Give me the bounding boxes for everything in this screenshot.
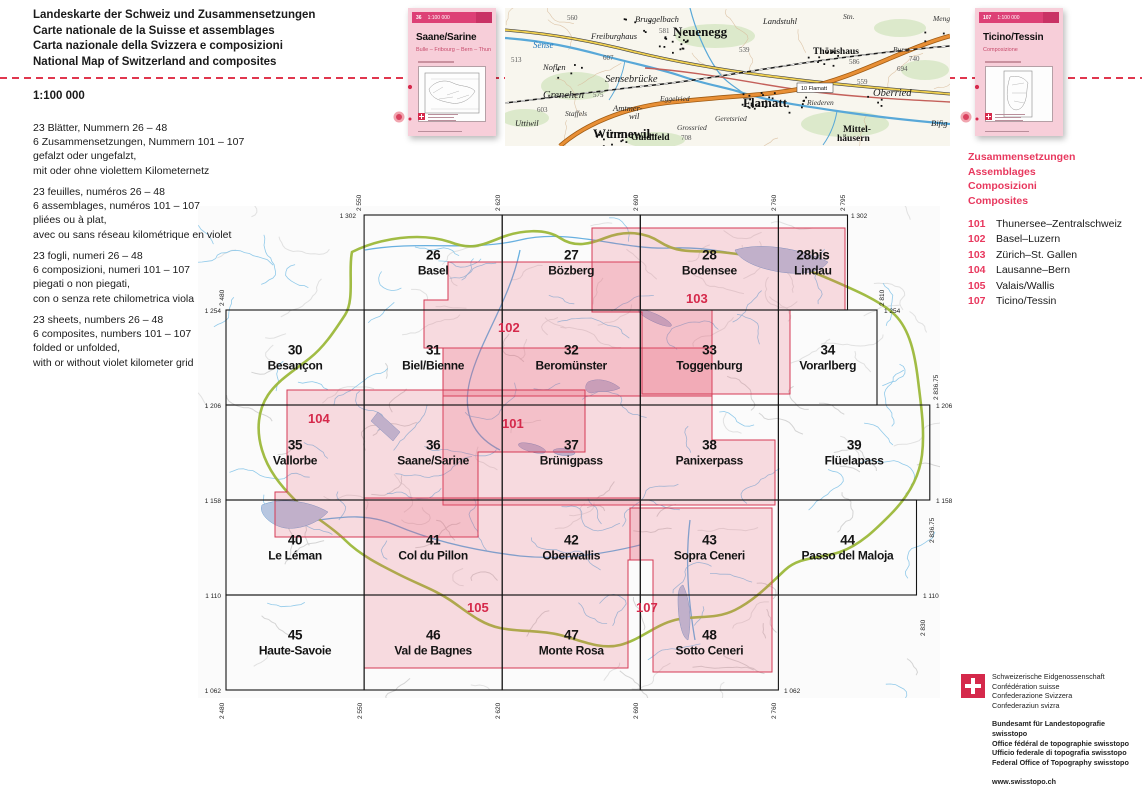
composite-item: 102Basel–Luzern xyxy=(968,232,1122,247)
cover-bottom-line xyxy=(418,131,462,132)
sheet-name-48: Sotto Ceneri xyxy=(675,644,743,658)
composite-name: Thunersee–Zentralschweiz xyxy=(996,217,1122,232)
sample-place-label: Eggelried xyxy=(659,94,690,103)
desc-line: pliées ou à plat, xyxy=(33,213,231,227)
composite-item: 103Zürich–St. Gallen xyxy=(968,248,1122,263)
cover-header-band: 107 1:100 000 xyxy=(979,12,1059,23)
sheet-number-28: 28 xyxy=(702,248,717,263)
sample-place-label: 740 xyxy=(909,55,920,63)
sheet-name-39: Flüelapass xyxy=(825,454,885,468)
confed-line: Confederazione Svizzera xyxy=(992,691,1142,701)
desc-line: gefalzt oder ungefalzt, xyxy=(33,149,244,163)
sheet-name-41: Col du Pillon xyxy=(398,549,467,563)
cover-caption-bar xyxy=(985,61,1021,63)
cover-band-endcap xyxy=(1043,12,1059,23)
sample-place-label: Flamatt xyxy=(743,95,788,110)
cover-footer xyxy=(418,113,488,127)
sample-place-label: Bifig xyxy=(931,118,948,128)
sheet-name-36: Saane/Sarine xyxy=(397,454,469,468)
sheet-name-30: Besançon xyxy=(268,359,323,373)
sample-place-label: Staffels xyxy=(565,109,587,118)
map-sample-image: BruggelbachLandstuhlStn.ThörishausNeuene… xyxy=(505,8,950,146)
description-en: 23 sheets, numbers 26 – 48 6 composites,… xyxy=(33,313,193,370)
sample-place-label: 560 xyxy=(567,14,578,22)
description-fr: 23 feuilles, numéros 26 – 48 6 assemblag… xyxy=(33,185,231,242)
composite-number: 104 xyxy=(968,263,996,278)
sample-place-label: 539 xyxy=(739,46,750,54)
coordinate-label: 2 830 xyxy=(920,619,927,636)
sample-place-label: Sense xyxy=(533,40,554,50)
coordinate-label: 2 690 xyxy=(633,194,640,211)
coordinate-label: 1 254 xyxy=(205,308,222,315)
coordinate-label: 1 302 xyxy=(851,213,868,220)
cover-subtitle: Composizione xyxy=(983,47,1018,53)
composites-heading: Composites xyxy=(968,194,1122,209)
sample-place-label: 575 xyxy=(593,91,604,99)
composite-number-103: 103 xyxy=(686,291,708,306)
sample-place-label: 603 xyxy=(537,106,548,114)
composite-item: 107Ticino/Tessin xyxy=(968,294,1122,309)
confed-line: Confédération suisse xyxy=(992,682,1142,692)
title-line-de: Landeskarte der Schweiz und Zusammensetz… xyxy=(33,8,315,24)
composites-panel: Zusammensetzungen Assemblages Composizio… xyxy=(968,150,1122,309)
coordinate-label: 2 620 xyxy=(495,702,502,719)
cover-title: Saane/Sarine xyxy=(416,32,476,43)
sample-place-label: Thörishaus xyxy=(813,47,859,57)
coordinate-label: 2 480 xyxy=(219,289,226,306)
sample-place-label: 607 xyxy=(603,54,614,62)
sample-place-label: 581 xyxy=(659,27,670,35)
composite-number: 103 xyxy=(968,248,996,263)
composite-name: Basel–Luzern xyxy=(996,232,1060,247)
desc-line: 6 composites, numbers 101 – 107 xyxy=(33,327,193,341)
sheet-number-32: 32 xyxy=(564,343,578,358)
coordinate-label: 2 810 xyxy=(879,289,886,306)
composite-number: 102 xyxy=(968,232,996,247)
swiss-confederation-logo-icon xyxy=(961,674,985,698)
cover-title: Ticino/Tessin xyxy=(983,32,1043,43)
sheet-number-38: 38 xyxy=(702,438,717,453)
sheet-name-46: Val de Bagnes xyxy=(394,644,472,658)
composites-heading: Zusammensetzungen xyxy=(968,150,1122,165)
title-line-en: National Map of Switzerland and composit… xyxy=(33,55,315,71)
composite-number-101: 101 xyxy=(502,416,524,431)
sheet-name-37: Brünigpass xyxy=(540,454,604,468)
swiss-cross-icon xyxy=(418,113,425,120)
sheet-number-40: 40 xyxy=(288,533,302,548)
composite-number: 105 xyxy=(968,279,996,294)
desc-line: 6 composizioni, numeri 101 – 107 xyxy=(33,263,194,277)
composite-number-104: 104 xyxy=(308,411,330,426)
composite-number-105: 105 xyxy=(467,600,489,615)
title-line-fr: Carte nationale de la Suisse et assembla… xyxy=(33,24,315,40)
office-line: Bundesamt für Landestopografie swisstopo xyxy=(992,719,1142,738)
cover-header-band: 36 1:100 000 xyxy=(412,12,492,23)
desc-line: con o senza rete chilometrica viola xyxy=(33,292,194,306)
sheet-number-36: 36 xyxy=(426,438,441,453)
desc-line: folded or unfolded, xyxy=(33,341,193,355)
sheet-number-41: 41 xyxy=(426,533,441,548)
sheet-name-44: Passo del Maloja xyxy=(802,549,895,563)
cover-sheet-number: 107 xyxy=(983,15,991,21)
cover-sheet-number: 36 xyxy=(416,15,422,21)
coordinate-label: 1 206 xyxy=(205,403,222,410)
sample-place-label: Uttiwil xyxy=(515,118,539,128)
sample-place-label: 708 xyxy=(681,134,692,142)
sheet-number-46: 46 xyxy=(426,628,441,643)
sheet-name-47: Monte Rosa xyxy=(539,644,605,658)
office-line: Federal Office of Topography swisstopo xyxy=(992,758,1142,768)
description-de: 23 Blätter, Nummern 26 – 48 6 Zusammense… xyxy=(33,121,244,178)
sample-place-label: Oberried xyxy=(873,88,912,99)
cover-band-endcap xyxy=(476,12,492,23)
composite-name: Valais/Wallis xyxy=(996,279,1054,294)
composites-headings: Zusammensetzungen Assemblages Composizio… xyxy=(968,150,1122,208)
page-title: Landeskarte der Schweiz und Zusammensetz… xyxy=(33,8,315,70)
sheet-number-42: 42 xyxy=(564,533,578,548)
composite-number: 101 xyxy=(968,217,996,232)
desc-line: 23 fogli, numeri 26 – 48 xyxy=(33,249,194,263)
cover-caption-bar xyxy=(418,61,454,63)
office-lines: Bundesamt für Landestopografie swisstopo… xyxy=(992,719,1142,767)
sheet-name-32: Beromünster xyxy=(536,359,608,373)
sheet-name-26: Basel xyxy=(418,264,449,278)
sample-place-label: Landstuhl xyxy=(762,16,798,26)
coordinate-label: 2 760 xyxy=(771,194,778,211)
sample-place-label: Sensebrücke xyxy=(605,74,658,85)
composite-number-102: 102 xyxy=(498,320,520,335)
sheet-name-28: Bodensee xyxy=(682,264,738,278)
coordinate-label: 2 550 xyxy=(357,702,364,719)
sample-place-label: Noflen xyxy=(542,62,566,72)
cover-saane-sarine: 36 1:100 000 Saane/Sarine Bulle – Fribou… xyxy=(408,8,496,136)
coordinate-label: 2 760 xyxy=(771,702,778,719)
coordinate-label: 2 690 xyxy=(633,702,640,719)
print-registration-marks xyxy=(392,60,416,130)
sheet-number-44: 44 xyxy=(840,533,855,548)
composite-number: 107 xyxy=(968,294,996,309)
swisstopo-footer: Schweizerische Eidgenossenschaft Confédé… xyxy=(961,672,1142,787)
sample-place-label: Riederen xyxy=(806,98,834,107)
sheet-number-47: 47 xyxy=(564,628,578,643)
confed-line: Confederaziun svizra xyxy=(992,701,1142,711)
sample-place-label: Grenchen xyxy=(543,90,584,101)
sample-place-label: 694 xyxy=(897,65,908,73)
desc-line: 23 sheets, numbers 26 – 48 xyxy=(33,313,193,327)
description-it: 23 fogli, numeri 26 – 48 6 composizioni,… xyxy=(33,249,194,306)
composite-name: Zürich–St. Gallen xyxy=(996,248,1077,263)
sheet-number-37: 37 xyxy=(564,438,578,453)
sheet-number-27: 27 xyxy=(564,248,578,263)
coordinate-label: 1 302 xyxy=(340,213,357,220)
sheet-number-33: 33 xyxy=(702,343,717,358)
office-line: Ufficio federale di topografia swisstopo xyxy=(992,748,1142,758)
composite-item: 101Thunersee–Zentralschweiz xyxy=(968,217,1122,232)
composite-item: 104Lausanne–Bern xyxy=(968,263,1122,278)
sheet-number-31: 31 xyxy=(426,343,441,358)
sheet-name-34: Vorarlberg xyxy=(799,359,856,373)
cover-ticino-tessin: 107 1:100 000 Ticino/Tessin Composizione xyxy=(975,8,1063,136)
coordinate-label: 1 062 xyxy=(784,688,801,695)
sample-place-label: 559 xyxy=(857,78,868,86)
coordinate-label: 1 110 xyxy=(205,593,221,600)
cover-scale: 1:100 000 xyxy=(997,15,1019,21)
composites-heading: Composizioni xyxy=(968,179,1122,194)
cover-scale: 1:100 000 xyxy=(428,15,450,21)
catalog-page: 26Basel27Bözberg28Bodensee28bisLindau30B… xyxy=(0,0,1142,804)
cover-footer xyxy=(985,113,1055,127)
sample-place-label: häusern xyxy=(837,134,870,144)
cover-subtitle: Bulle – Fribourg – Bern – Thun xyxy=(416,47,491,53)
coordinate-label: 2 480 xyxy=(219,702,226,719)
coordinate-label: 1 158 xyxy=(205,498,222,505)
desc-line: with or without violet kilometer grid xyxy=(33,356,193,370)
coordinate-label: 1 110 xyxy=(923,593,939,600)
desc-line: avec ou sans réseau kilométrique en viol… xyxy=(33,228,231,242)
desc-line: 6 Zusammensetzungen, Nummern 101 – 107 xyxy=(33,135,244,149)
sheet-name-42: Oberwallis xyxy=(542,549,600,563)
sheet-number-48: 48 xyxy=(702,628,717,643)
sheet-number-35: 35 xyxy=(288,438,303,453)
composites-heading: Assemblages xyxy=(968,165,1122,180)
sheet-name-40: Le Léman xyxy=(268,549,322,563)
composites-list: 101Thunersee–Zentralschweiz 102Basel–Luz… xyxy=(968,217,1122,309)
sample-place-label: Freiburghaus xyxy=(590,31,638,41)
sheet-name-45: Haute-Savoie xyxy=(259,644,332,658)
sample-place-label: Guldifeld xyxy=(631,133,670,143)
composite-name: Ticino/Tessin xyxy=(996,294,1056,309)
desc-line: 6 assemblages, numéros 101 – 107 xyxy=(33,199,231,213)
coordinate-label: 1 062 xyxy=(205,688,222,695)
sample-place-label: 10 Flamatt xyxy=(801,86,827,92)
composite-item: 105Valais/Wallis xyxy=(968,279,1122,294)
composite-number-107: 107 xyxy=(636,600,658,615)
desc-line: 23 Blätter, Nummern 26 – 48 xyxy=(33,121,244,135)
desc-line: 23 feuilles, numéros 26 – 48 xyxy=(33,185,231,199)
sheet-name-27: Bözberg xyxy=(548,264,594,278)
coordinate-label: 2 550 xyxy=(356,194,363,211)
sample-place-label: Bruggelbach xyxy=(635,14,679,24)
sheet-name-33: Toggenburg xyxy=(676,359,742,373)
coordinate-label: 2 795 xyxy=(840,194,847,211)
coordinate-label: 1 158 xyxy=(936,498,953,505)
website-link[interactable]: www.swisstopo.ch xyxy=(992,777,1142,787)
sample-place-label: Meng- xyxy=(932,14,950,23)
sample-place-label: 586 xyxy=(849,58,860,66)
sample-place-label: 513 xyxy=(511,56,522,64)
sheet-number-26: 26 xyxy=(426,248,441,263)
title-line-it: Carta nazionale della Svizzera e composi… xyxy=(33,39,315,55)
sample-place-label: Geretsried xyxy=(715,114,747,123)
sheet-number-34: 34 xyxy=(821,343,836,358)
sheet-name-28bis: Lindau xyxy=(794,264,832,278)
confederation-lines: Schweizerische Eidgenossenschaft Confédé… xyxy=(992,672,1142,710)
desc-line: piegati o non piegati, xyxy=(33,277,194,291)
sheet-number-45: 45 xyxy=(288,628,303,643)
sheet-number-28bis: 28bis xyxy=(796,248,829,263)
office-line: Office fédéral de topographie swisstopo xyxy=(992,739,1142,749)
coordinate-label: 2 836.75 xyxy=(933,374,940,400)
scale-label: 1:100 000 xyxy=(33,90,85,102)
desc-line: mit oder ohne violettem Kilometernetz xyxy=(33,164,244,178)
coordinate-label: 2 836.75 xyxy=(929,517,936,543)
sheet-name-43: Sopra Ceneri xyxy=(674,549,745,563)
composite-name: Lausanne–Bern xyxy=(996,263,1070,278)
swiss-cross-icon xyxy=(985,113,992,120)
sample-place-label: Burst xyxy=(893,45,910,54)
coordinate-label: 1 254 xyxy=(884,308,901,315)
coordinate-label: 1 206 xyxy=(936,403,953,410)
sample-place-label: wil xyxy=(629,111,640,121)
sheet-name-31: Biel/Bienne xyxy=(402,359,465,373)
sample-place-label: Stn. xyxy=(843,12,855,21)
sheet-name-38: Panixerpass xyxy=(676,454,744,468)
confed-line: Schweizerische Eidgenossenschaft xyxy=(992,672,1142,682)
sheet-number-39: 39 xyxy=(847,438,861,453)
sheet-name-35: Vallorbe xyxy=(273,454,318,468)
sample-place-label: Neuenegg xyxy=(673,24,728,39)
sample-place-label: Grossried xyxy=(677,123,707,132)
sheet-number-43: 43 xyxy=(702,533,717,548)
coordinate-label: 2 620 xyxy=(495,194,502,211)
cover-bottom-line xyxy=(985,131,1029,132)
print-registration-marks xyxy=(959,60,983,130)
sheet-number-30: 30 xyxy=(288,343,302,358)
